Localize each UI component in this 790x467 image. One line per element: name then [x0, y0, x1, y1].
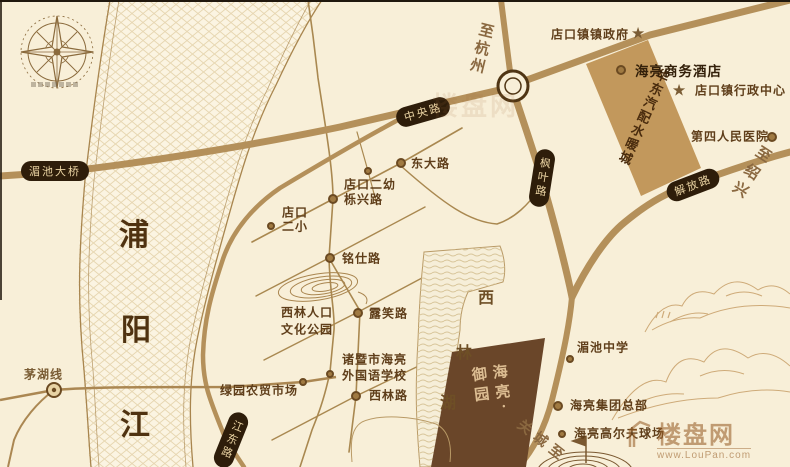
top-border — [0, 0, 790, 2]
meichi-bridge-label: 湄池大桥 — [21, 161, 89, 181]
compass-caption — [31, 82, 78, 87]
park-label-l2: 文化公园 — [281, 321, 333, 338]
project-name-label: 海亮·御园 — [467, 363, 517, 436]
river-name-char: 阳 — [121, 305, 151, 349]
river-name-char: 江 — [120, 400, 150, 444]
river-name-char: 浦 — [119, 210, 149, 254]
watermark-url: www.LouPan.com — [657, 448, 751, 461]
watermark-brand: 楼盘网 — [657, 424, 735, 448]
lake-name-char: 湖 — [440, 389, 456, 413]
lixing-road-dot — [328, 194, 338, 204]
school-label-l2: 外国语学校 — [342, 367, 407, 384]
group-hq-dot — [553, 401, 563, 411]
luxiao-road-dot — [353, 308, 363, 318]
maohu-line-label: 茅湖线 — [24, 366, 63, 383]
admin-center-label: 店口镇行政中心 — [695, 82, 786, 99]
market-dot — [299, 378, 307, 386]
hotel-dot — [616, 65, 626, 75]
left-border — [0, 0, 2, 300]
school-label-l1: 诸暨市海亮 — [342, 351, 407, 368]
maohu-node — [47, 383, 61, 397]
group-hq-label: 海亮集团总部 — [570, 397, 648, 414]
meichi-school-label: 湄池中学 — [577, 339, 629, 356]
watermark-faint: 楼盘网 — [432, 86, 519, 123]
luxiao-road-label: 露笑路 — [369, 305, 408, 322]
park-label-l1: 西林人口 — [281, 304, 333, 321]
xilin-road-label: 西林路 — [369, 387, 408, 404]
star-icon: ★ — [631, 24, 645, 43]
maohu-road-branch — [8, 390, 54, 467]
hospital-label: 第四人民医院 — [691, 128, 769, 145]
compass-icon — [21, 16, 93, 88]
lake-name-char: 林 — [456, 339, 472, 363]
primary-school-dot — [267, 222, 275, 230]
dongda-road-label: 东大路 — [411, 155, 450, 172]
dongda-road-dot — [396, 158, 406, 168]
market-label: 绿园农贸市场 — [220, 382, 298, 399]
town-gov-label: 店口镇镇政府 — [551, 26, 629, 43]
golf-dot — [558, 430, 566, 438]
meichi-school-dot — [566, 355, 574, 363]
lake-name-char: 西 — [478, 284, 494, 308]
hospital-dot — [767, 132, 777, 142]
location-map: 浦 阳 江 西 林 湖 湄池大桥 中央路 枫叶路 解放路 江东路 至杭州 至绍兴… — [0, 0, 790, 467]
school-dot — [326, 370, 334, 378]
lixing-road-label: 栎兴路 — [344, 191, 383, 208]
primary-school-label-l2: 二小 — [282, 218, 308, 235]
mingshi-road-dot — [325, 253, 335, 263]
watermark-house-icon — [627, 420, 653, 448]
xilin-road-dot — [351, 391, 361, 401]
kindergarten-dot — [364, 167, 372, 175]
hotel-label: 海亮商务酒店 — [635, 60, 722, 80]
star-icon: ★ — [672, 81, 686, 100]
watermark: 楼盘网 www.LouPan.com — [627, 420, 751, 461]
mingshi-road-label: 铭仕路 — [342, 250, 381, 267]
